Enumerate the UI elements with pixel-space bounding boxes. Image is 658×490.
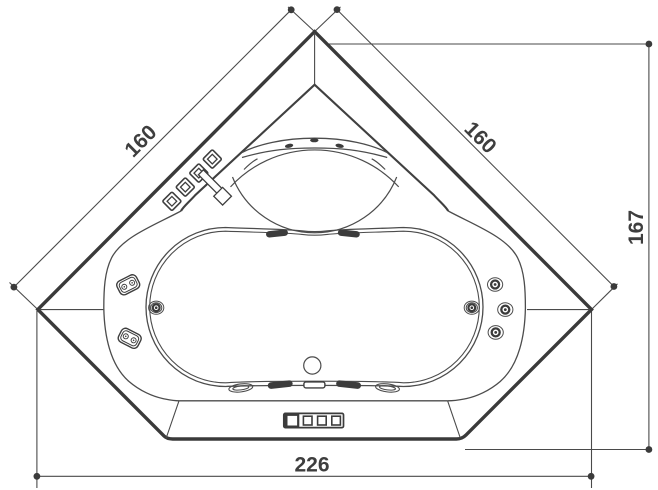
svg-text:167: 167: [625, 210, 648, 245]
svg-text:226: 226: [294, 454, 329, 477]
